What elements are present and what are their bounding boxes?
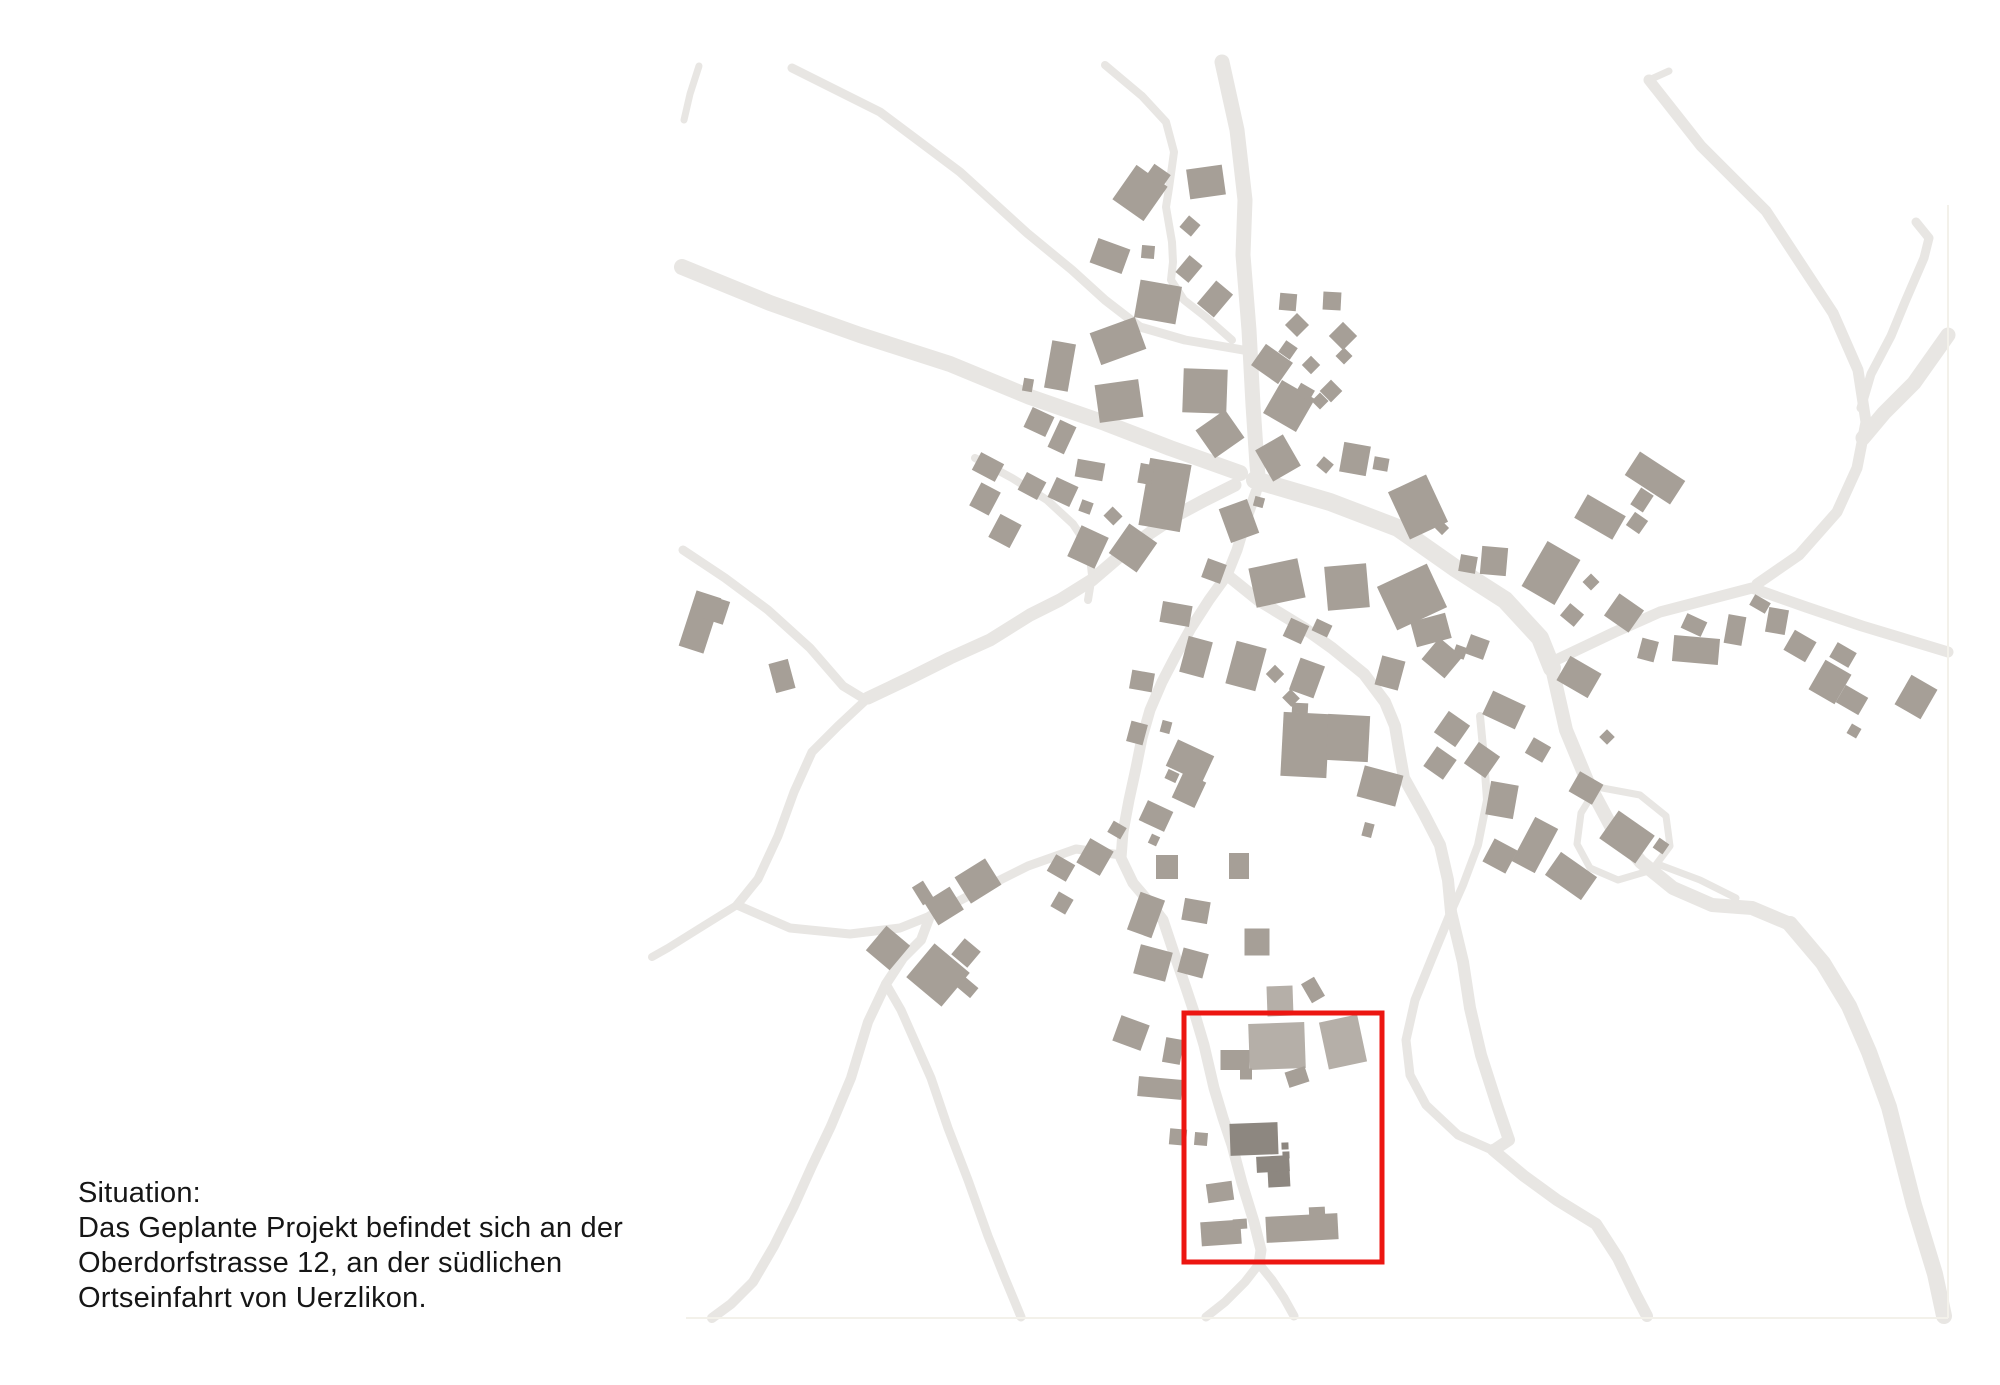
building-footprint bbox=[1112, 1015, 1149, 1051]
building-footprint bbox=[1127, 892, 1165, 938]
building-footprint bbox=[1434, 711, 1470, 747]
building-footprint bbox=[1265, 1213, 1338, 1243]
building-footprint bbox=[1134, 280, 1182, 325]
road-northeast-diagonal bbox=[1649, 80, 1866, 584]
building-footprint bbox=[1266, 665, 1284, 683]
building-footprint bbox=[1078, 499, 1093, 514]
road-south-southeast-road bbox=[886, 984, 1021, 1317]
building-footprint bbox=[1339, 442, 1371, 476]
building-footprint bbox=[1681, 613, 1708, 637]
road-hamlet-bottom-road bbox=[737, 905, 930, 934]
building-footprint bbox=[1156, 855, 1178, 879]
building-footprint bbox=[1137, 1076, 1183, 1100]
building-footprint bbox=[1221, 1050, 1250, 1070]
building-footprint bbox=[1724, 614, 1747, 646]
building-footprint bbox=[1095, 379, 1144, 423]
building-footprint bbox=[1672, 635, 1720, 665]
building-footprint bbox=[1574, 494, 1626, 539]
building-footprint bbox=[1103, 506, 1122, 525]
building-footprint bbox=[1783, 630, 1816, 662]
building-footprint bbox=[1560, 603, 1584, 627]
caption-line: Ortseinfahrt von Uerzlikon. bbox=[78, 1281, 623, 1316]
building-footprint bbox=[1075, 459, 1106, 482]
buildings-layer bbox=[679, 164, 1938, 1247]
building-footprint bbox=[1206, 1181, 1234, 1203]
building-footprint bbox=[1599, 729, 1615, 745]
road-post-lens-road bbox=[1493, 1150, 1647, 1316]
building-footprint bbox=[1361, 822, 1374, 838]
building-footprint bbox=[1336, 348, 1353, 365]
building-footprint bbox=[1280, 712, 1329, 778]
road-north-stub bbox=[684, 66, 699, 120]
road-right-wide-road bbox=[1863, 335, 1948, 438]
building-footprint bbox=[1279, 293, 1297, 311]
road-south-fork-east bbox=[1259, 1264, 1294, 1316]
building-footprint bbox=[1423, 746, 1456, 779]
site-plan-page: Situation: Das Geplante Projekt befindet… bbox=[0, 0, 2000, 1385]
road-west-stub bbox=[652, 905, 737, 957]
building-footprint bbox=[1240, 1069, 1252, 1080]
building-footprint bbox=[1512, 817, 1558, 873]
building-footprint bbox=[1375, 655, 1406, 690]
building-footprint bbox=[1301, 977, 1325, 1004]
building-footprint bbox=[1464, 742, 1500, 778]
building-footprint bbox=[1323, 292, 1342, 311]
building-footprint bbox=[1194, 1132, 1208, 1146]
building-footprint bbox=[1302, 356, 1320, 374]
building-footprint bbox=[1159, 601, 1192, 627]
building-footprint bbox=[1175, 255, 1202, 283]
building-footprint bbox=[1256, 1155, 1290, 1173]
building-footprint bbox=[1129, 670, 1155, 693]
building-footprint bbox=[1765, 607, 1789, 635]
road-lens-east-branch bbox=[1451, 912, 1509, 1150]
building-footprint bbox=[1480, 546, 1508, 576]
building-footprint bbox=[1268, 1170, 1291, 1187]
caption-line: Das Geplante Projekt befindet sich an de… bbox=[78, 1211, 623, 1246]
building-footprint bbox=[1141, 245, 1155, 259]
building-footprint bbox=[1225, 641, 1266, 692]
building-footprint bbox=[1637, 638, 1659, 663]
caption-title: Situation: bbox=[78, 1176, 623, 1211]
building-footprint bbox=[1289, 658, 1325, 699]
building-footprint bbox=[1482, 838, 1517, 873]
building-footprint bbox=[1090, 238, 1131, 274]
building-footprint bbox=[1133, 944, 1173, 982]
building-footprint bbox=[1076, 838, 1113, 876]
building-footprint bbox=[1458, 554, 1478, 574]
building-footprint bbox=[1522, 541, 1581, 605]
building-footprint bbox=[1329, 322, 1357, 350]
building-footprint bbox=[1048, 420, 1077, 455]
building-footprint bbox=[1485, 781, 1518, 819]
caption-line: Oberdorfstrasse 12, an der südlichen bbox=[78, 1246, 623, 1281]
building-footprint bbox=[1324, 563, 1370, 610]
building-footprint bbox=[1464, 634, 1490, 660]
building-footprint bbox=[1196, 410, 1245, 458]
building-footprint bbox=[1309, 1207, 1326, 1218]
building-footprint bbox=[1248, 558, 1305, 608]
road-east-road bbox=[1556, 588, 1948, 660]
building-footprint bbox=[1229, 853, 1249, 879]
building-footprint bbox=[1245, 929, 1270, 956]
building-footprint bbox=[1583, 574, 1600, 591]
building-footprint bbox=[1160, 720, 1173, 734]
building-footprint bbox=[1846, 723, 1861, 738]
building-footprint bbox=[1285, 1066, 1310, 1088]
building-footprint bbox=[1248, 1022, 1306, 1070]
building-footprint bbox=[1292, 703, 1309, 714]
road-southeast-curve bbox=[1790, 924, 1944, 1316]
building-footprint bbox=[988, 514, 1021, 548]
building-footprint bbox=[1181, 898, 1210, 924]
building-footprint bbox=[1139, 800, 1174, 832]
building-footprint bbox=[1233, 1219, 1248, 1230]
building-footprint bbox=[1625, 452, 1686, 505]
road-southwest-curvy-road bbox=[737, 698, 868, 905]
road-long-southwest-road bbox=[712, 984, 886, 1318]
building-footprint bbox=[1357, 765, 1404, 806]
building-footprint bbox=[1186, 165, 1226, 200]
building-footprint bbox=[1626, 512, 1648, 534]
building-footprint bbox=[1179, 215, 1200, 236]
building-footprint bbox=[1482, 691, 1526, 730]
building-footprint bbox=[1182, 368, 1228, 414]
road-south-fork-west bbox=[1206, 1264, 1259, 1317]
building-footprint bbox=[768, 659, 795, 693]
building-footprint bbox=[1050, 891, 1073, 914]
caption-block: Situation: Das Geplante Projekt befindet… bbox=[78, 1176, 623, 1316]
building-footprint bbox=[1829, 642, 1857, 668]
building-footprint bbox=[1285, 313, 1309, 337]
building-footprint bbox=[1148, 834, 1160, 847]
building-footprint bbox=[1372, 456, 1389, 471]
building-footprint bbox=[1316, 456, 1334, 474]
building-footprint bbox=[1545, 852, 1597, 900]
building-footprint bbox=[1895, 675, 1938, 719]
building-footprint bbox=[1162, 1037, 1184, 1065]
building-footprint bbox=[969, 482, 1001, 515]
building-footprint bbox=[1326, 714, 1370, 762]
building-footprint bbox=[1525, 737, 1551, 763]
building-footprint bbox=[1229, 1122, 1278, 1156]
building-footprint bbox=[1281, 1142, 1288, 1149]
building-footprint bbox=[1044, 340, 1076, 391]
building-footprint bbox=[1319, 1014, 1367, 1069]
road-northeast-spur bbox=[1649, 71, 1669, 80]
